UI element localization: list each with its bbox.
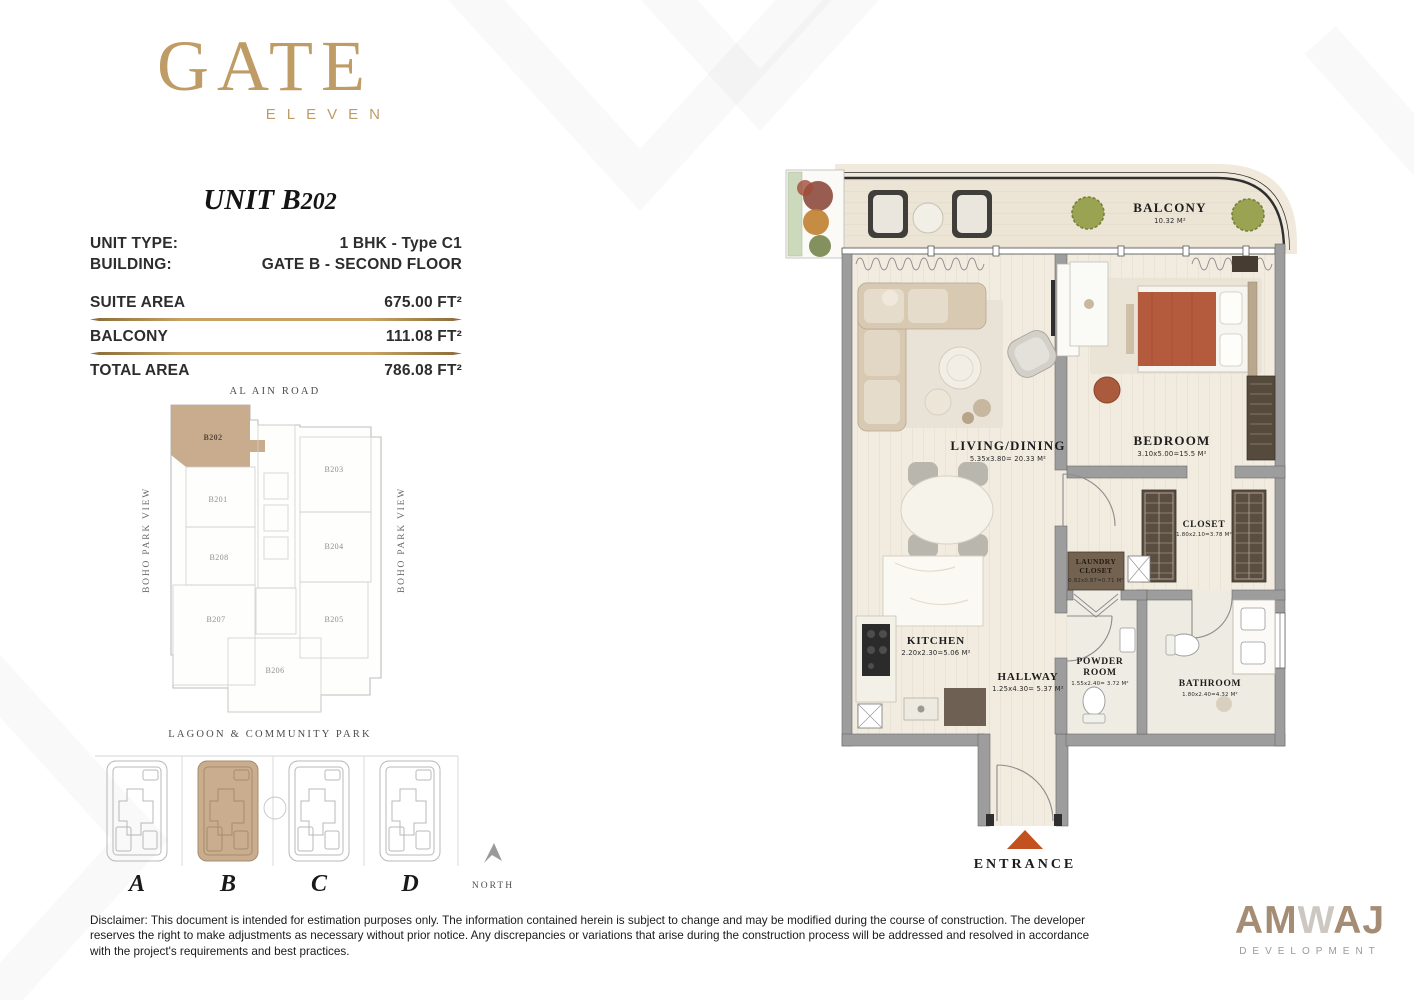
gate-eleven-logo: GATE ELEVEN (135, 30, 395, 123)
closet-dims: 1.80x2.10=3.78 M² (1176, 531, 1232, 538)
toilet (1166, 634, 1199, 656)
powder-label-1: POWDER (1077, 657, 1124, 667)
headboard (1248, 282, 1257, 376)
entrance: ENTRANCE (974, 830, 1077, 872)
north-arrow-icon (484, 843, 502, 863)
detail-row-building: BUILDING: GATE B - SECOND FLOOR (90, 254, 462, 275)
road-label-top: AL AIN ROAD (230, 386, 321, 397)
amwaj-aj: AJ (1333, 899, 1385, 942)
planter-box (786, 170, 844, 258)
closet-label: CLOSET (1183, 520, 1226, 530)
bath-stool (1216, 696, 1232, 712)
cooktop (862, 624, 890, 676)
plant-orange (803, 209, 829, 235)
dresser-decor (1084, 299, 1094, 309)
nightstand (1232, 256, 1258, 272)
brochure-page: GATE ELEVEN UNIT B202 UNIT TYPE: 1 BHK -… (0, 0, 1414, 1000)
kitchen-island (883, 556, 983, 626)
bathroom-label: BATHROOM (1179, 679, 1241, 689)
plant-green (809, 235, 831, 257)
building-d-plan (380, 761, 440, 861)
bed (1126, 282, 1257, 376)
dining-set (901, 462, 993, 558)
amwaj-am: AM (1235, 899, 1298, 942)
amwaj-logo: AMWAJ DEVELOPMENT (1220, 901, 1400, 957)
hallway-label: HALLWAY (997, 671, 1058, 683)
detail-label: UNIT TYPE: (90, 233, 178, 254)
unit-title-prefix: UNIT B (203, 184, 300, 216)
amwaj-w: W (1298, 899, 1334, 942)
shaft-box (858, 704, 882, 728)
wall-wardrobe (1247, 376, 1275, 460)
floor-plan: BALCONY 10.32 M² (780, 158, 1320, 882)
balcony-armchair (868, 190, 908, 238)
road-label-bottom: LAGOON & COMMUNITY PARK (168, 729, 372, 740)
area-label: BALCONY (90, 328, 168, 346)
bed-bench (1126, 304, 1134, 354)
unit-label-b204: B204 (325, 542, 344, 551)
detail-label: BUILDING: (90, 254, 172, 275)
unit-label-b203: B203 (325, 465, 344, 474)
building-selector: A B C D NORTH (85, 750, 525, 902)
view-label-left: BOHO PARK VIEW (142, 487, 152, 593)
area-label: SUITE AREA (90, 294, 185, 312)
building-label-b: B (219, 871, 236, 897)
area-row-suite: SUITE AREA 675.00 FT² (90, 287, 462, 318)
building-label-d: D (400, 871, 418, 897)
unit-title-digits: 202 (301, 189, 337, 215)
unit-label-b205: B205 (325, 615, 344, 624)
unit-details-table: UNIT TYPE: 1 BHK - Type C1 BUILDING: GAT… (90, 233, 462, 386)
gold-divider (90, 318, 462, 321)
pillow (1220, 334, 1242, 366)
unit-label-b208: B208 (210, 553, 229, 562)
building-label-c: C (311, 871, 328, 897)
balcony-plant-pot (1232, 199, 1264, 231)
bedroom-label: BEDROOM (1133, 433, 1210, 448)
unit-label-b202: B202 (204, 433, 223, 442)
building-a-plan (107, 761, 167, 861)
balcony-label: BALCONY (1133, 200, 1206, 215)
amwaj-subtitle: DEVELOPMENT (1220, 946, 1400, 957)
logo-subtitle: ELEVEN (135, 106, 395, 123)
plant-red-small (797, 180, 813, 196)
vanity (1233, 600, 1275, 674)
side-table-small (962, 412, 974, 424)
powder-sink (1120, 628, 1135, 652)
hallway: HALLWAY 1.25x4.30= 5.37 M² (992, 671, 1064, 693)
kitchen-label: KITCHEN (907, 635, 965, 647)
toilet (1083, 687, 1105, 723)
laundry-label-1: LAUNDRY (1076, 557, 1117, 566)
bathroom-window (1275, 613, 1285, 668)
amwaj-wordmark: AMWAJ (1220, 901, 1400, 941)
entrance-arrow-icon (1007, 830, 1043, 849)
shaft-box (1128, 556, 1150, 582)
detail-value: 1 BHK - Type C1 (340, 233, 462, 254)
area-value: 111.08 FT² (386, 328, 462, 346)
disclaimer-text: Disclaimer: This document is intended fo… (90, 913, 1112, 959)
sink (1241, 608, 1265, 630)
balcony-zone: BALCONY 10.32 M² (786, 164, 1297, 258)
detail-value: GATE B - SECOND FLOOR (262, 254, 462, 275)
balcony-floor (842, 176, 1285, 250)
unit-label-b207: B207 (207, 615, 226, 624)
key-plan: AL AIN ROAD LAGOON & COMMUNITY PARK BOHO… (128, 378, 450, 754)
balcony-plant-pot (1072, 197, 1104, 229)
kitchen-dims: 2.20x2.30=5.06 M² (901, 649, 970, 657)
balcony-side-table (913, 203, 943, 233)
lagoon-circle (264, 797, 286, 819)
area-value: 675.00 FT² (384, 294, 462, 312)
side-table (973, 399, 991, 417)
detail-row-unit-type: UNIT TYPE: 1 BHK - Type C1 (90, 233, 462, 254)
living-label: LIVING/DINING (950, 438, 1065, 453)
living-dims: 5.35x3.80= 20.33 M² (970, 455, 1046, 463)
coffee-table (939, 347, 981, 389)
coffee-table-small (925, 389, 951, 415)
gold-divider (90, 352, 462, 355)
sink (1241, 642, 1265, 664)
entrance-label: ENTRANCE (974, 857, 1077, 872)
kitchen-sink (904, 698, 938, 720)
unit-label-b206: B206 (266, 666, 285, 675)
balcony-armchair (952, 190, 992, 238)
building-label-a: A (127, 871, 145, 897)
dining-table (901, 476, 993, 544)
building-b-plan-selected (198, 761, 258, 861)
tv-screen (1051, 280, 1055, 336)
north-label: NORTH (472, 881, 514, 891)
bedroom-armchair (1094, 377, 1120, 403)
hallway-dims: 1.25x4.30= 5.37 M² (992, 685, 1064, 693)
laundry-dims: 0.82x0.87=0.71 M² (1068, 577, 1124, 584)
bedroom-dims: 3.10x5.00=15.5 M² (1137, 450, 1206, 458)
bathroom-dims: 1.80x2.40=4.32 M² (1182, 691, 1238, 698)
powder-dims: 1.55x2.40= 3.72 M² (1071, 680, 1129, 687)
laundry-label-2: CLOSET (1079, 566, 1112, 575)
logo-brand: GATE (135, 30, 395, 102)
wardrobe (1232, 490, 1266, 582)
pillow (1220, 292, 1242, 324)
building-c-plan (289, 761, 349, 861)
kitchen-cabinet (944, 688, 986, 726)
view-label-right: BOHO PARK VIEW (397, 487, 407, 593)
unit-title: UNIT B202 (160, 184, 380, 217)
area-row-balcony: BALCONY 111.08 FT² (90, 321, 462, 352)
unit-label-b201: B201 (209, 495, 228, 504)
powder-label-2: ROOM (1083, 668, 1116, 678)
bed-blanket (1138, 292, 1216, 366)
balcony-dims: 10.32 M² (1154, 217, 1186, 225)
